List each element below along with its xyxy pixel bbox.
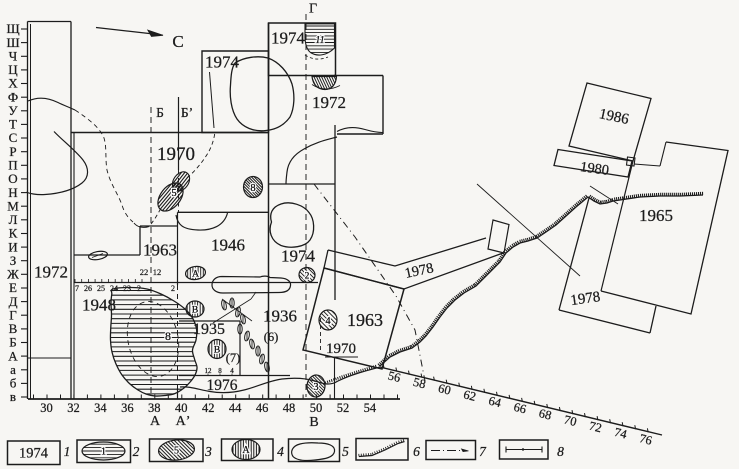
- svg-text:1: 1: [64, 444, 71, 459]
- svg-text:38: 38: [148, 401, 161, 415]
- svg-text:В: В: [192, 305, 198, 315]
- svg-text:1974: 1974: [281, 247, 316, 266]
- svg-text:1974: 1974: [19, 446, 49, 462]
- svg-text:В: В: [214, 345, 220, 355]
- svg-text:1972: 1972: [34, 263, 68, 282]
- svg-text:22: 22: [140, 267, 149, 277]
- svg-text:В: В: [309, 415, 318, 430]
- svg-text:32: 32: [67, 401, 80, 415]
- svg-text:7: 7: [75, 284, 79, 293]
- svg-text:8: 8: [250, 183, 255, 194]
- svg-text:в: в: [10, 389, 16, 404]
- svg-text:30: 30: [40, 401, 53, 415]
- svg-text:4: 4: [277, 444, 284, 459]
- svg-text:Аʼ: Аʼ: [176, 414, 191, 429]
- svg-text:1935: 1935: [193, 321, 225, 338]
- svg-text:40: 40: [175, 401, 188, 415]
- svg-text:4: 4: [325, 316, 331, 327]
- svg-text:8: 8: [165, 329, 171, 343]
- svg-text:46: 46: [256, 401, 269, 415]
- svg-text:1965: 1965: [639, 206, 673, 225]
- svg-text:54: 54: [364, 401, 377, 415]
- svg-text:Г: Г: [309, 2, 317, 17]
- svg-text:3: 3: [313, 382, 318, 393]
- svg-text:1: 1: [101, 447, 106, 458]
- svg-text:5: 5: [174, 446, 179, 457]
- svg-text:1946: 1946: [211, 236, 245, 255]
- svg-text:1970: 1970: [326, 341, 356, 357]
- svg-text:1936: 1936: [263, 307, 297, 326]
- svg-text:2: 2: [171, 284, 175, 293]
- svg-text:1974: 1974: [271, 29, 306, 48]
- svg-text:8: 8: [557, 444, 564, 459]
- svg-text:А: А: [150, 414, 161, 429]
- svg-text:1974: 1974: [205, 53, 240, 72]
- svg-text:С: С: [172, 32, 183, 51]
- svg-text:44: 44: [229, 401, 242, 415]
- svg-text:26: 26: [84, 284, 92, 293]
- svg-text:Бʼ: Бʼ: [181, 105, 193, 120]
- svg-text:2: 2: [133, 444, 140, 459]
- svg-text:3: 3: [204, 444, 212, 459]
- svg-text:34: 34: [94, 401, 107, 415]
- svg-text:23: 23: [123, 284, 131, 293]
- svg-text:1972: 1972: [312, 93, 346, 112]
- svg-text:А: А: [242, 445, 250, 456]
- svg-text:Б: Б: [156, 105, 164, 120]
- svg-text:42: 42: [202, 401, 215, 415]
- svg-text:36: 36: [121, 401, 134, 415]
- svg-text:5: 5: [342, 444, 349, 459]
- svg-text:1970: 1970: [157, 144, 195, 165]
- svg-text:12: 12: [153, 267, 162, 277]
- svg-text:А: А: [192, 269, 199, 279]
- svg-text:52: 52: [337, 401, 350, 415]
- svg-text:1963: 1963: [347, 310, 383, 330]
- svg-text:(6): (6): [264, 330, 279, 344]
- svg-text:2: 2: [305, 271, 310, 281]
- svg-text:50: 50: [310, 401, 323, 415]
- svg-text:(7): (7): [226, 351, 241, 365]
- svg-text:11: 11: [315, 35, 324, 46]
- svg-text:1963: 1963: [143, 241, 177, 260]
- svg-text:6: 6: [413, 444, 420, 459]
- svg-text:25: 25: [97, 284, 105, 293]
- svg-text:5: 5: [171, 188, 176, 199]
- svg-text:48: 48: [283, 401, 296, 415]
